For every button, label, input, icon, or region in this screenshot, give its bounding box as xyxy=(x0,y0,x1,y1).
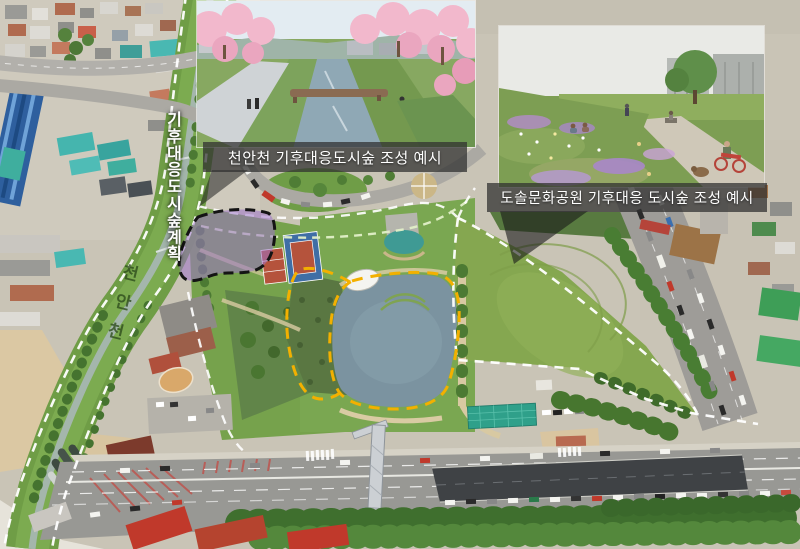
parking-lot-west xyxy=(147,394,233,434)
caption-dosol-park: 도솔문화공원 기후대응 도시숲 조성 예시 xyxy=(487,183,767,212)
caption-cheonancheon: 천안천 기후대응도시숲 조성 예시 xyxy=(203,142,467,172)
climate-forest-plan-map: 천안천 기후대응도시숲 조성 예시 xyxy=(0,0,800,549)
cheonancheon-photo-scene xyxy=(197,1,476,148)
corridor-vertical-label: 기후대응도시숲계획 xyxy=(165,113,184,264)
inset-photo-dosol-park xyxy=(498,25,765,188)
dosol-photo-scene xyxy=(499,26,765,188)
inset-photo-cheonancheon xyxy=(196,0,476,148)
parking-canopy xyxy=(467,403,536,429)
